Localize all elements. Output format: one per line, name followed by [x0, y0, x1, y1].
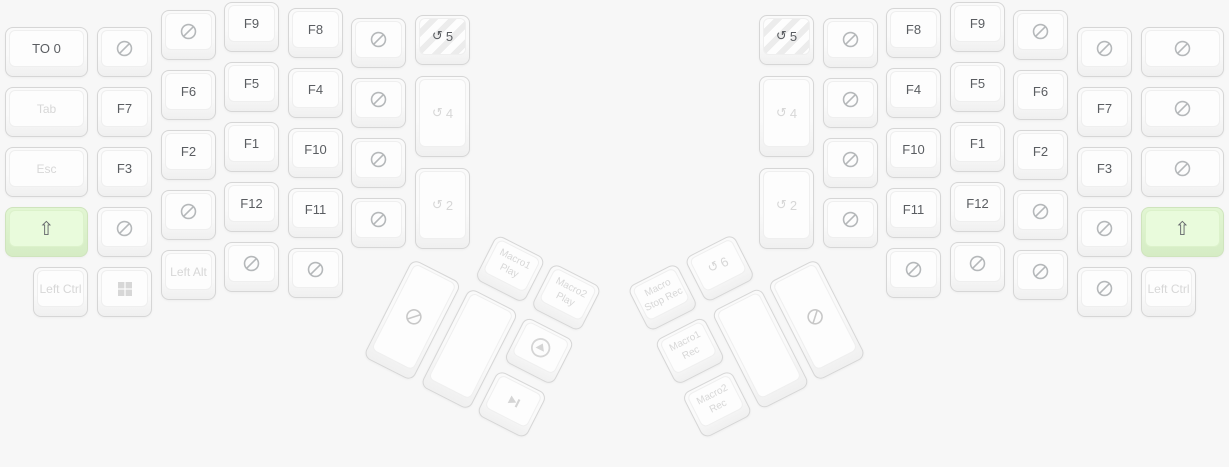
key-to-layer-0[interactable]: TO 0 [5, 27, 88, 77]
keycap-face: Macro2Play [539, 267, 598, 321]
keycap-face [1145, 30, 1220, 67]
shift-arrow-icon: ⇧ [39, 218, 55, 240]
no-sign-icon [1031, 262, 1050, 281]
key-f1[interactable]: F1 [950, 122, 1005, 172]
key-none[interactable] [1013, 10, 1068, 60]
key-windows[interactable] [97, 267, 152, 317]
key-none[interactable] [351, 78, 406, 128]
keycap-face [1145, 150, 1220, 187]
keycap-face [1017, 193, 1064, 230]
key-label: F2 [1033, 144, 1048, 159]
key-shift-right[interactable]: ⇧ [1141, 207, 1224, 257]
layer-number: 5 [790, 29, 797, 44]
key-tab[interactable]: Tab [5, 87, 88, 137]
key-label: F7 [117, 101, 132, 116]
key-macro1-play[interactable]: Macro1Play [474, 234, 546, 304]
key-none[interactable] [351, 138, 406, 188]
key-label: F7 [1097, 101, 1112, 116]
key-label: F4 [906, 82, 921, 97]
keycap-face: F8 [292, 11, 339, 48]
keyboard-layout-view: TO 0TabEsc⇧Left CtrlF7F3F6F2Left AltF9F5… [0, 0, 1229, 467]
key-f6[interactable]: F6 [161, 70, 216, 120]
keycap-face [890, 251, 937, 288]
key-label: F1 [244, 136, 259, 151]
keycap-face: F3 [1081, 150, 1128, 187]
no-sign-icon [369, 150, 388, 169]
key-none[interactable] [1141, 147, 1224, 197]
keycap-face [1017, 13, 1064, 50]
key-f10[interactable]: F10 [886, 128, 941, 178]
key-none[interactable] [161, 10, 216, 60]
key-macro1-rec[interactable]: Macro1Rec [654, 316, 726, 386]
key-macro2-play[interactable]: Macro2Play [530, 263, 602, 333]
keycap-face [101, 270, 148, 307]
key-none[interactable] [886, 248, 941, 298]
key-toggle-layer-5[interactable]: ↺5 [759, 15, 814, 65]
no-sign-icon [1095, 219, 1114, 238]
key-label: Left Alt [170, 265, 207, 279]
no-sign-icon [242, 254, 261, 273]
key-label: Macro1Play [491, 247, 532, 284]
key-label: Macro2Rec [695, 383, 736, 420]
key-shift-left[interactable]: ⇧ [5, 207, 88, 257]
key-f12[interactable]: F12 [950, 182, 1005, 232]
keycap-face [954, 245, 1001, 282]
keycap-face: Esc [9, 150, 84, 187]
key-f8[interactable]: F8 [886, 8, 941, 58]
key-none[interactable] [823, 18, 878, 68]
key-label: F12 [966, 196, 988, 211]
keycap-face: F12 [228, 185, 275, 222]
keycap-face [827, 81, 874, 118]
key-esc[interactable]: Esc [5, 147, 88, 197]
key-toggle-layer-5[interactable]: ↺5 [415, 15, 470, 65]
keycap-face: F8 [890, 11, 937, 48]
no-sign-icon [841, 210, 860, 229]
key-skip-next[interactable] [476, 370, 548, 440]
keycap-face: ↺5 [763, 18, 810, 55]
keycap-face: TO 0 [9, 30, 84, 67]
key-label: F3 [117, 161, 132, 176]
keycap-face: ↺6 [689, 238, 748, 292]
keycap-face: F9 [954, 5, 1001, 42]
key-label: TO 0 [32, 41, 61, 56]
no-sign-icon [841, 30, 860, 49]
key-label: F12 [240, 196, 262, 211]
keycap-face: F9 [228, 5, 275, 42]
no-sign-icon [369, 210, 388, 229]
keycap-face [511, 321, 570, 375]
key-none[interactable] [288, 248, 343, 298]
key-label: F3 [1097, 161, 1112, 176]
key-none[interactable] [351, 198, 406, 248]
key-label: F4 [308, 82, 323, 97]
keycap-face: F2 [165, 133, 212, 170]
keycap-face: Left Ctrl [1145, 270, 1192, 307]
key-none[interactable] [1141, 87, 1224, 137]
key-label: F10 [304, 142, 326, 157]
key-none[interactable] [351, 18, 406, 68]
key-label: F8 [308, 22, 323, 37]
key-none[interactable] [823, 198, 878, 248]
key-f2[interactable]: F2 [1013, 130, 1068, 180]
key-none[interactable] [1013, 250, 1068, 300]
key-f3[interactable]: F3 [97, 147, 152, 197]
key-f4[interactable]: F4 [886, 68, 941, 118]
key-f8[interactable]: F8 [288, 8, 343, 58]
key-none[interactable] [823, 138, 878, 188]
key-label: F8 [906, 22, 921, 37]
key-label: F5 [244, 76, 259, 91]
key-f1[interactable]: F1 [224, 122, 279, 172]
keycap-face [1081, 270, 1128, 307]
key-label: F5 [970, 76, 985, 91]
key-f9[interactable]: F9 [950, 2, 1005, 52]
no-sign-icon [904, 260, 923, 279]
key-label: Macro2Play [547, 276, 588, 313]
shift-arrow-icon: ⇧ [1175, 218, 1191, 240]
keycap-face [355, 201, 402, 238]
keycap-face [1145, 90, 1220, 127]
key-label: MacroStop Rec [637, 274, 685, 315]
no-sign-icon [802, 304, 828, 330]
key-none[interactable] [823, 78, 878, 128]
keycap-face: ↺5 [419, 18, 466, 55]
keycap-face: F6 [1017, 73, 1064, 110]
key-f10[interactable]: F10 [288, 128, 343, 178]
layer-cycle-icon: ↺ [776, 106, 787, 121]
keycap-face [827, 21, 874, 58]
key-label: F10 [902, 142, 924, 157]
no-sign-icon [841, 90, 860, 109]
keycap-face: Macro2Rec [686, 374, 745, 428]
no-sign-icon [968, 254, 987, 273]
keycap-face: ⇧ [9, 210, 84, 247]
key-none[interactable] [161, 190, 216, 240]
keycap-face [355, 81, 402, 118]
windows-icon [118, 282, 132, 296]
key-none[interactable] [1077, 267, 1132, 317]
keycap-face: F3 [101, 150, 148, 187]
keycap-face [165, 193, 212, 230]
keycap-face: F11 [292, 191, 339, 228]
key-left-alt[interactable]: Left Alt [161, 250, 216, 300]
key-label: F11 [305, 202, 326, 217]
keycap-face [1017, 253, 1064, 290]
key-f6[interactable]: F6 [1013, 70, 1068, 120]
keycap-face: F6 [165, 73, 212, 110]
key-arrow-up-circle[interactable] [503, 316, 575, 386]
keycap-face: F1 [228, 125, 275, 162]
no-sign-icon [1173, 39, 1192, 58]
keycap-face: ↺4 [763, 79, 810, 147]
no-sign-icon [115, 219, 134, 238]
no-sign-icon [179, 22, 198, 41]
keycap-face: F4 [292, 71, 339, 108]
keycap-face: MacroStop Rec [632, 267, 691, 321]
keycap-face: F7 [101, 90, 148, 127]
no-sign-icon [306, 260, 325, 279]
key-label: F11 [903, 202, 924, 217]
no-sign-icon [1173, 99, 1192, 118]
layer-cycle-icon: ↺ [432, 106, 443, 121]
keycap-face: Left Alt [165, 253, 212, 290]
keycap-face: Tab [9, 90, 84, 127]
key-f5[interactable]: F5 [950, 62, 1005, 112]
key-f11[interactable]: F11 [288, 188, 343, 238]
key-label: Macro1Rec [668, 329, 709, 366]
key-f11[interactable]: F11 [886, 188, 941, 238]
no-sign-icon [1173, 159, 1192, 178]
layer-cycle-icon: ↺ [776, 29, 787, 44]
no-sign-icon [1031, 22, 1050, 41]
key-label: F9 [970, 16, 985, 31]
keycap-face: F1 [954, 125, 1001, 162]
keycap-face [827, 141, 874, 178]
key-label: F2 [181, 144, 196, 159]
layer-number: 5 [446, 29, 453, 44]
key-none[interactable] [950, 242, 1005, 292]
key-none[interactable] [224, 242, 279, 292]
key-toggle-layer-4[interactable]: ↺4 [415, 76, 470, 157]
no-sign-icon [115, 39, 134, 58]
key-f12[interactable]: F12 [224, 182, 279, 232]
key-f5[interactable]: F5 [224, 62, 279, 112]
key-toggle-layer-6[interactable]: ↺6 [684, 234, 756, 304]
key-macro2-rec[interactable]: Macro2Rec [681, 370, 753, 440]
key-left-ctrl[interactable]: Left Ctrl [33, 267, 88, 317]
key-none[interactable] [1141, 27, 1224, 77]
key-label: F6 [1033, 84, 1048, 99]
keycap-face [101, 30, 148, 67]
key-none[interactable] [1077, 207, 1132, 257]
keycap-face [827, 201, 874, 238]
keycap-face [355, 21, 402, 58]
key-label: Tab [37, 102, 56, 116]
keycap-face: F11 [890, 191, 937, 228]
keycap-face [1081, 30, 1128, 67]
key-none[interactable] [97, 27, 152, 77]
keycap-face: F7 [1081, 90, 1128, 127]
no-sign-icon [1095, 39, 1114, 58]
keycap-face: F5 [228, 65, 275, 102]
key-none[interactable] [1077, 27, 1132, 77]
key-label: Left Ctrl [1147, 282, 1189, 296]
keycap-face [355, 141, 402, 178]
keycap-face [165, 13, 212, 50]
arrow-up-circle-icon [525, 332, 556, 363]
keycap-face [484, 374, 543, 428]
keycap-face: ↺4 [419, 79, 466, 147]
keycap-face: F2 [1017, 133, 1064, 170]
keycap-face: Left Ctrl [37, 270, 84, 307]
key-label: F6 [181, 84, 196, 99]
keycap-face: Macro1Rec [659, 321, 718, 375]
keycap-face: F10 [292, 131, 339, 168]
layer-number: 4 [790, 106, 797, 121]
no-sign-icon [369, 90, 388, 109]
key-f3[interactable]: F3 [1077, 147, 1132, 197]
key-f9[interactable]: F9 [224, 2, 279, 52]
key-f2[interactable]: F2 [161, 130, 216, 180]
layer-cycle-icon: ↺ [432, 29, 443, 44]
key-left-ctrl[interactable]: Left Ctrl [1141, 267, 1196, 317]
layer-number: 4 [446, 106, 453, 121]
keycap-face: Macro1Play [482, 239, 541, 293]
keycap-face [292, 251, 339, 288]
key-label: F1 [970, 136, 985, 151]
key-f4[interactable]: F4 [288, 68, 343, 118]
key-label: F9 [244, 16, 259, 31]
key-macro-stop-rec[interactable]: MacroStop Rec [627, 263, 699, 333]
no-sign-icon [401, 304, 427, 330]
keycap-face: F5 [954, 65, 1001, 102]
no-sign-icon [369, 30, 388, 49]
skip-next-icon [502, 390, 525, 413]
keycap-face: ⇧ [1145, 210, 1220, 247]
no-sign-icon [1095, 279, 1114, 298]
no-sign-icon [1031, 202, 1050, 221]
keycap-face [228, 245, 275, 282]
key-f7[interactable]: F7 [1077, 87, 1132, 137]
no-sign-icon [179, 202, 198, 221]
key-label: Left Ctrl [39, 282, 81, 296]
no-sign-icon [841, 150, 860, 169]
key-none[interactable] [1013, 190, 1068, 240]
keycap-face: F10 [890, 131, 937, 168]
keycap-face [101, 210, 148, 247]
keycap-face: F12 [954, 185, 1001, 222]
key-label: Esc [36, 162, 56, 176]
keycap-face [1081, 210, 1128, 247]
key-none[interactable] [97, 207, 152, 257]
key-f7[interactable]: F7 [97, 87, 152, 137]
key-toggle-layer-4[interactable]: ↺4 [759, 76, 814, 157]
keycap-face: F4 [890, 71, 937, 108]
